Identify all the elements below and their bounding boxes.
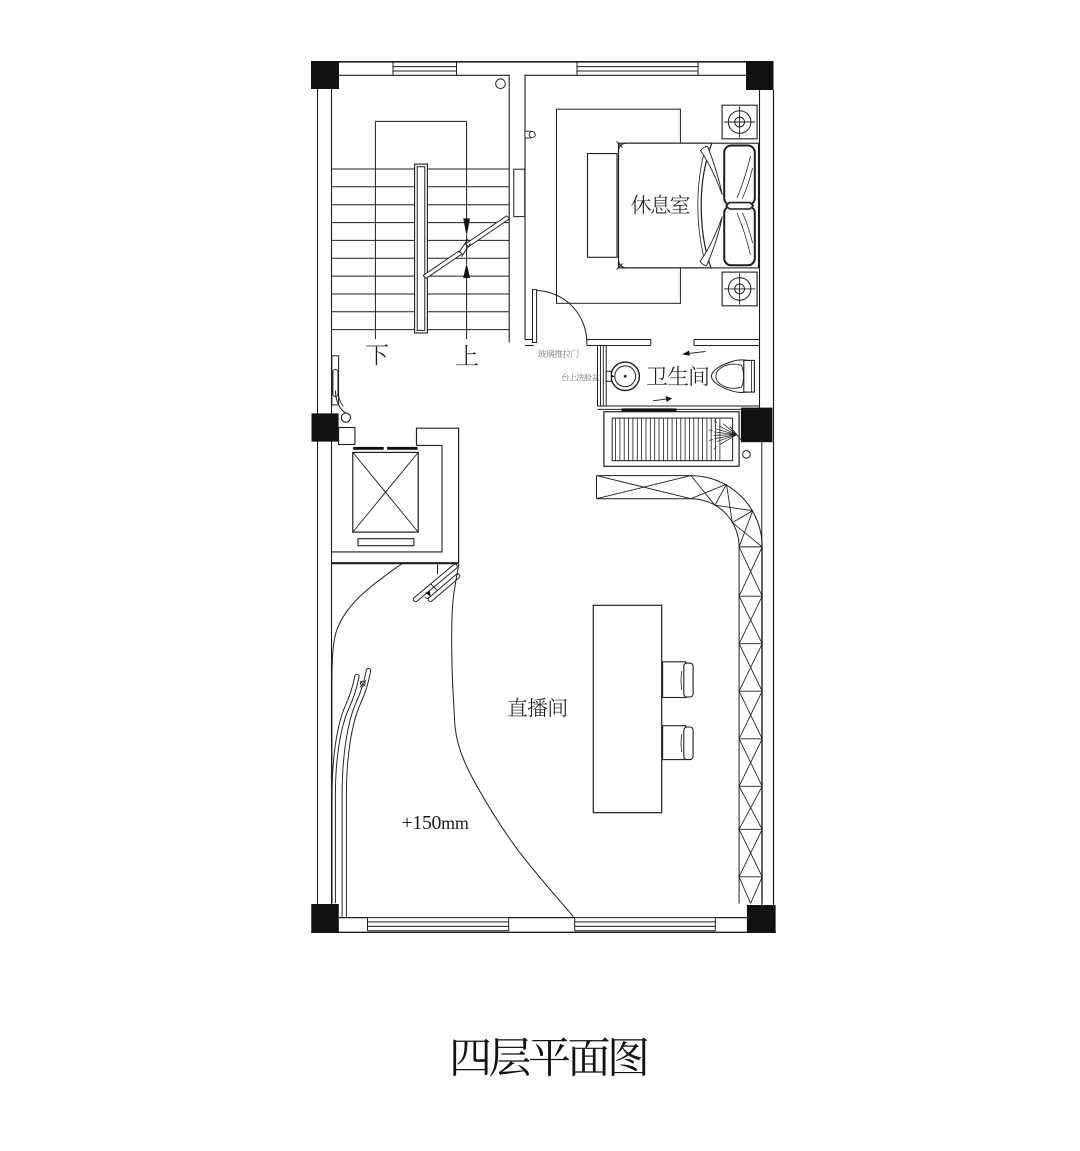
svg-text:+150mm: +150mm xyxy=(402,812,469,834)
